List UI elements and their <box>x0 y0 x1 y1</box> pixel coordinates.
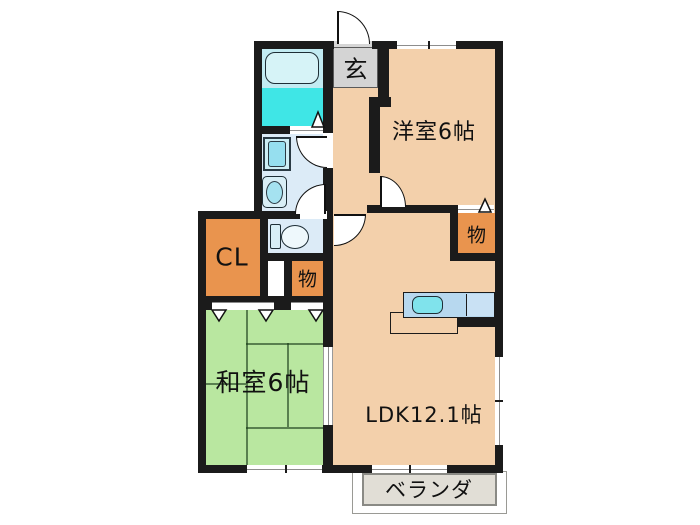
western-room-label: 洋室6帖 <box>392 114 476 146</box>
kitchen-counter-right <box>466 294 494 317</box>
wall-segment <box>495 445 503 473</box>
bath-door-opening <box>290 126 323 134</box>
storage-upper-door <box>458 205 494 213</box>
sliding-door-japanese-room <box>323 347 333 425</box>
wall-segment <box>495 41 503 357</box>
tatami-line <box>246 343 323 345</box>
window <box>495 357 503 445</box>
wall-segment <box>198 211 300 219</box>
closet-label: CL <box>215 243 248 272</box>
vanity-basin <box>266 181 283 204</box>
storage-sliding-door <box>291 302 323 310</box>
wall-segment <box>198 465 247 473</box>
washing-machine-drum <box>268 141 286 167</box>
window-veranda-sliding <box>372 465 447 473</box>
toilet-bowl <box>281 225 309 249</box>
window <box>247 465 322 473</box>
wall-segment <box>267 253 333 261</box>
wall-segment <box>369 107 380 173</box>
japanese-room-label: 和室6帖 <box>216 363 311 399</box>
veranda-label: ベランダ <box>385 474 473 504</box>
closet-sliding-doors <box>212 302 274 310</box>
toilet-tank <box>270 224 281 249</box>
wall-segment <box>369 97 391 107</box>
wall-segment <box>254 41 334 49</box>
genkan-label: 玄 <box>344 50 369 85</box>
entrance-door-arc <box>337 11 370 44</box>
window <box>395 41 458 49</box>
storage-lower-label: 物 <box>298 265 318 292</box>
bathroom-floor-lower <box>262 88 323 126</box>
wall-segment <box>322 465 372 473</box>
storage-upper-label: 物 <box>467 221 487 248</box>
wall-segment <box>323 41 333 133</box>
tatami-line <box>246 427 323 429</box>
bathtub <box>265 52 319 84</box>
wall-segment <box>254 126 292 134</box>
wall-segment <box>378 47 389 97</box>
wall-segment <box>198 211 206 473</box>
wall-segment <box>274 302 291 310</box>
ldk-label: LDK12.1帖 <box>365 399 482 429</box>
kitchen-sink <box>412 296 443 314</box>
floorplan-canvas: 玄 洋室6帖 物 物 CL 和室6帖 LDK12.1帖 ベランダ <box>0 0 700 525</box>
